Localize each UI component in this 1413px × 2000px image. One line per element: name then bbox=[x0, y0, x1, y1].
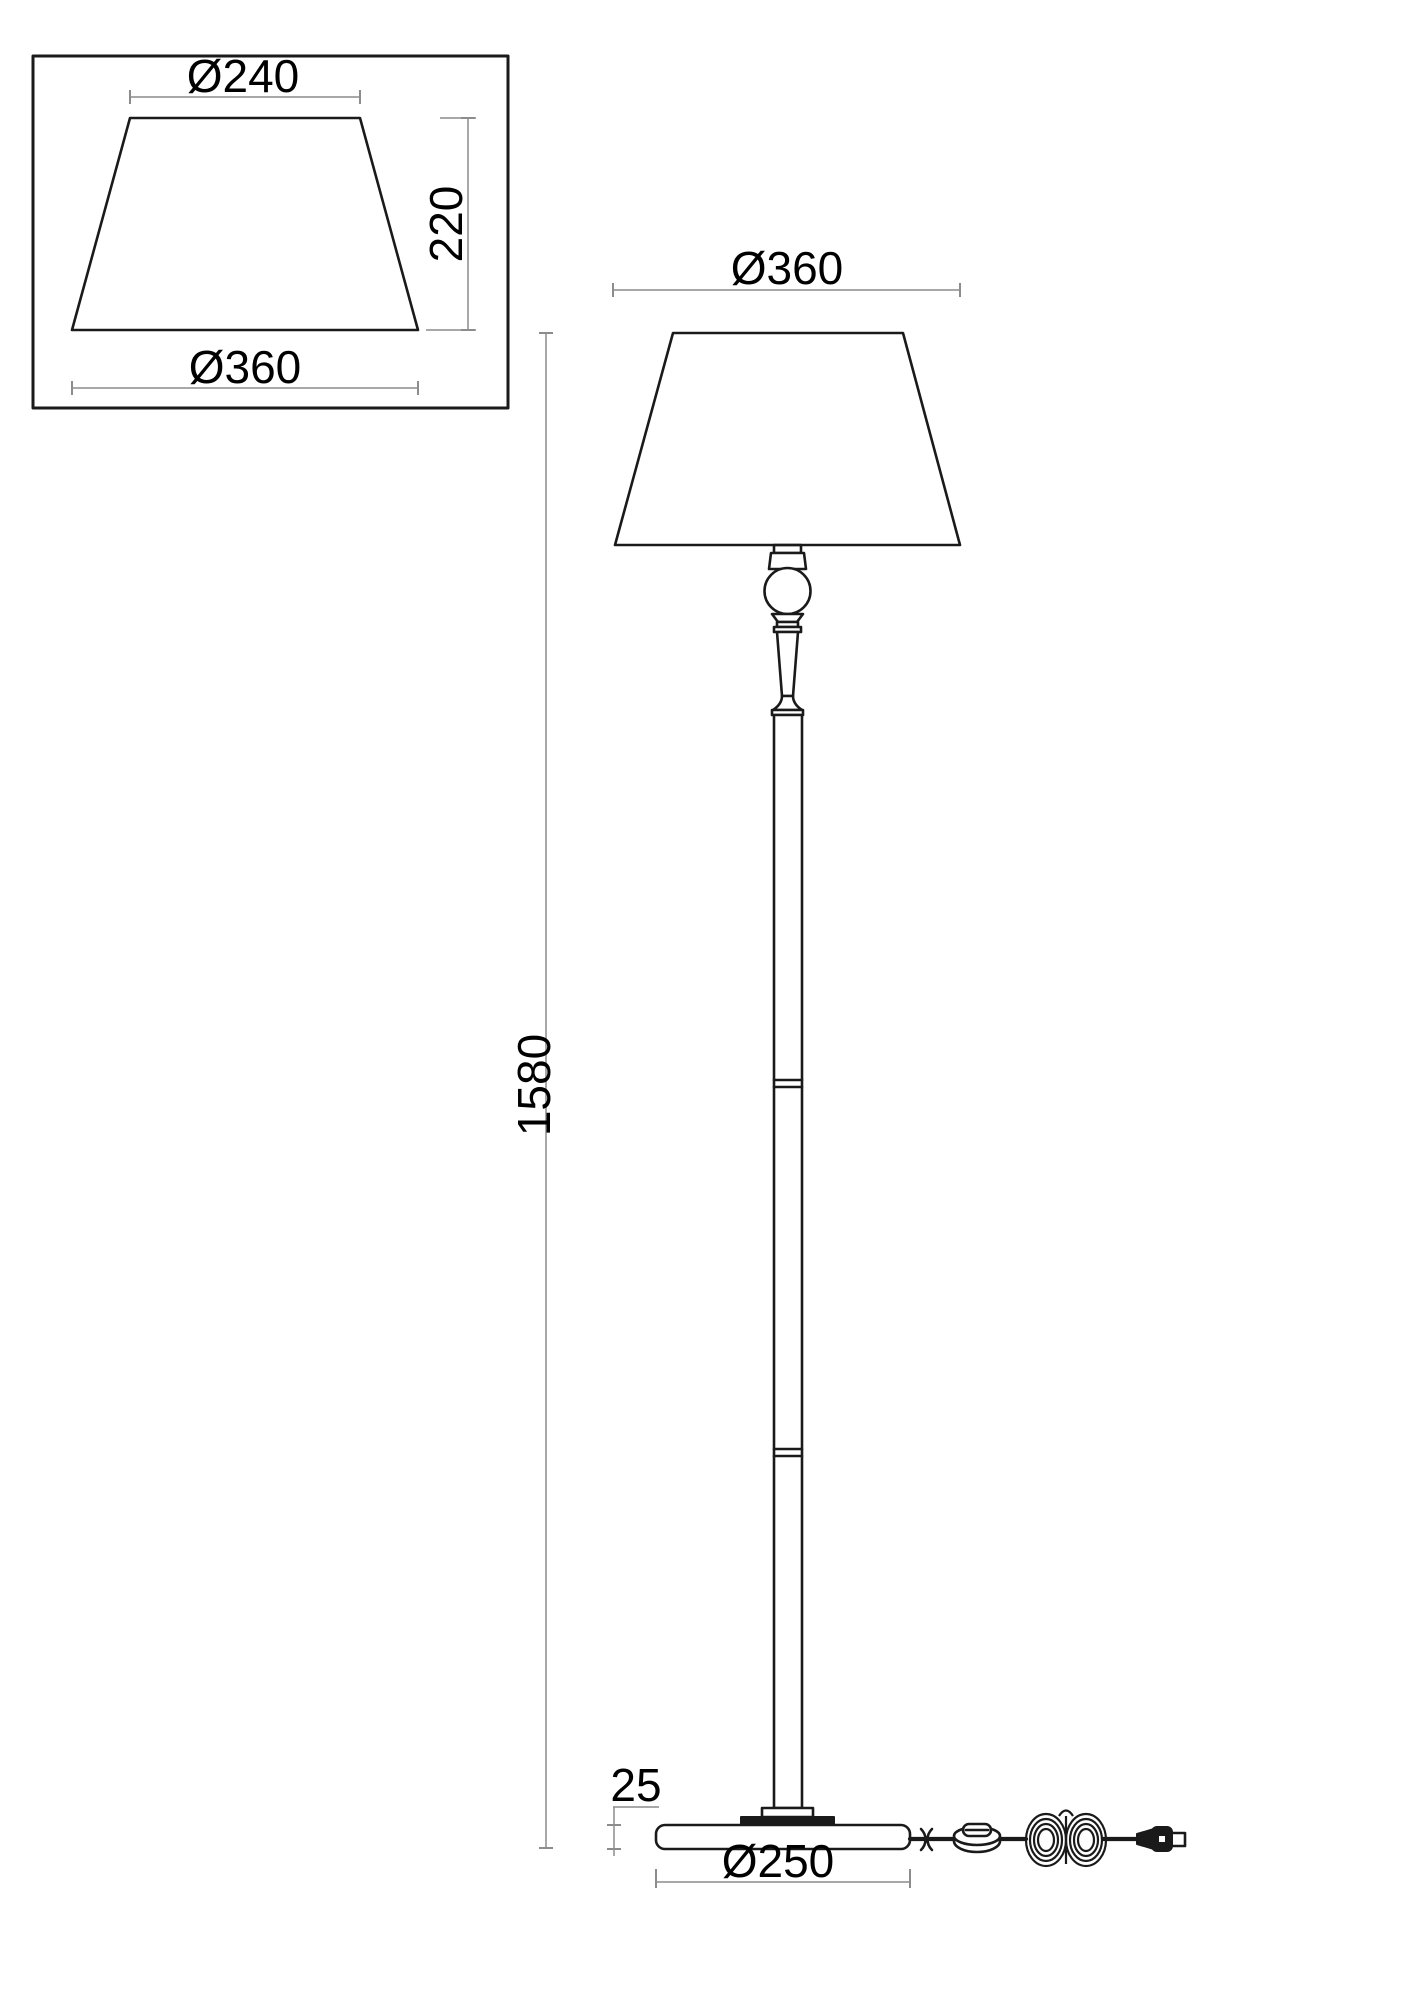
floor-lamp-dimension-drawing: Ø240 220 Ø360 Ø360 bbox=[0, 0, 1413, 2000]
dim-base-height: 25 bbox=[607, 1759, 662, 1856]
dim-shade-diameter: Ø360 bbox=[613, 242, 960, 297]
shade-diameter-label: Ø360 bbox=[731, 242, 844, 294]
power-cord-assembly bbox=[910, 1811, 1185, 1867]
power-plug bbox=[1137, 1827, 1185, 1851]
stem-ball bbox=[765, 568, 811, 614]
base-plinth-upper bbox=[762, 1808, 813, 1817]
stem-tapered-column bbox=[777, 632, 798, 696]
detail-view-lampshade: Ø240 220 Ø360 bbox=[33, 50, 508, 408]
foot-switch bbox=[954, 1824, 1000, 1852]
lamp-pole bbox=[774, 715, 802, 1808]
stem-cup bbox=[769, 553, 806, 569]
plug-body-hole bbox=[1159, 1836, 1165, 1842]
detail-bottom-diameter-label: Ø360 bbox=[189, 341, 302, 393]
pole-outline bbox=[774, 715, 802, 1808]
technical-drawing-page: Ø240 220 Ø360 Ø360 bbox=[0, 0, 1413, 2000]
cord-coil bbox=[1026, 1811, 1106, 1867]
main-view-floor-lamp: Ø360 1580 bbox=[508, 242, 1185, 1888]
stem-foot-flare bbox=[773, 696, 802, 710]
lamp-shade bbox=[615, 333, 960, 545]
base-height-label: 25 bbox=[610, 1759, 661, 1811]
plug-prong-bottom bbox=[1172, 1840, 1185, 1846]
plug-prong-top bbox=[1172, 1833, 1185, 1839]
detail-height-label: 220 bbox=[420, 186, 472, 263]
base-diameter-label: Ø250 bbox=[722, 1835, 835, 1887]
dim-total-height: 1580 bbox=[508, 333, 560, 1848]
detail-shade-outline bbox=[72, 118, 418, 330]
lamp-stem-ornament bbox=[765, 545, 811, 715]
detail-top-diameter-label: Ø240 bbox=[187, 50, 300, 102]
total-height-label: 1580 bbox=[508, 1034, 560, 1136]
